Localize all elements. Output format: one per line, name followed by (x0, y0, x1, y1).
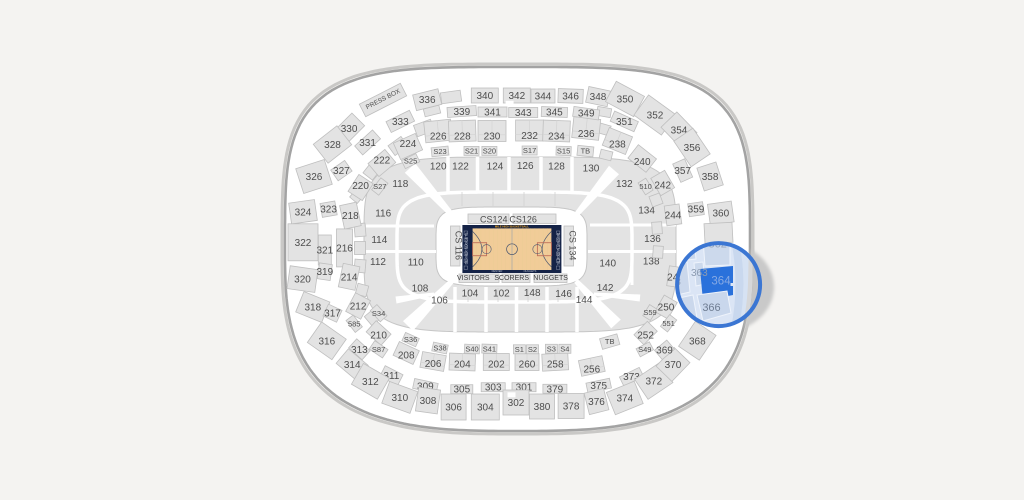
svg-text:S17: S17 (523, 146, 536, 155)
svg-text:130: 130 (583, 164, 600, 175)
svg-text:322: 322 (295, 238, 312, 249)
svg-text:345: 345 (546, 108, 563, 119)
svg-text:370: 370 (665, 360, 682, 371)
svg-text:CS126: CS126 (509, 214, 537, 224)
svg-text:339: 339 (453, 107, 470, 118)
svg-text:146: 146 (555, 289, 572, 300)
svg-text:204: 204 (454, 360, 471, 371)
svg-text:S40: S40 (465, 345, 478, 354)
svg-text:104: 104 (462, 288, 479, 299)
svg-text:341: 341 (484, 108, 501, 119)
svg-text:378: 378 (563, 402, 580, 413)
svg-text:CS 116: CS 116 (454, 231, 464, 260)
svg-text:328: 328 (324, 140, 341, 151)
svg-text:312: 312 (362, 377, 379, 388)
svg-text:306: 306 (445, 403, 462, 414)
svg-text:NUGGETS: NUGGETS (533, 275, 568, 282)
svg-text:S49: S49 (638, 345, 651, 354)
svg-text:142: 142 (597, 283, 614, 294)
svg-text:331: 331 (359, 138, 376, 149)
svg-text:S21: S21 (465, 147, 478, 156)
svg-text:350: 350 (617, 95, 634, 106)
svg-text:202: 202 (488, 360, 505, 371)
svg-text:216: 216 (336, 243, 353, 254)
svg-text:106: 106 (431, 295, 448, 306)
svg-text:144: 144 (576, 295, 593, 306)
svg-text:230: 230 (484, 132, 501, 143)
svg-text:242: 242 (654, 181, 671, 192)
svg-text:304: 304 (477, 403, 494, 414)
svg-text:108: 108 (412, 283, 429, 294)
svg-text:356: 356 (684, 143, 701, 154)
svg-text:357: 357 (674, 166, 691, 177)
svg-text:319: 319 (316, 267, 333, 278)
svg-text:349: 349 (578, 109, 595, 120)
svg-text:551: 551 (662, 319, 675, 328)
svg-text:214: 214 (341, 272, 358, 283)
svg-text:318: 318 (304, 303, 321, 314)
svg-text:327: 327 (333, 166, 350, 177)
svg-text:S41: S41 (483, 344, 496, 353)
svg-text:336: 336 (419, 95, 436, 106)
svg-text:340: 340 (476, 91, 493, 102)
svg-text:226: 226 (430, 132, 447, 143)
svg-text:S1: S1 (515, 345, 524, 354)
svg-text:210: 210 (370, 331, 387, 342)
svg-text:317: 317 (324, 309, 341, 320)
svg-text:358: 358 (702, 172, 719, 183)
svg-text:222: 222 (374, 156, 391, 167)
svg-text:368: 368 (689, 336, 706, 347)
svg-text:102: 102 (493, 288, 510, 299)
svg-text:240: 240 (634, 157, 651, 168)
svg-text:S2: S2 (528, 345, 537, 354)
svg-text:206: 206 (425, 359, 442, 370)
svg-text:SCORERS: SCORERS (494, 275, 529, 282)
svg-text:314: 314 (344, 360, 361, 371)
svg-text:S4: S4 (560, 344, 569, 353)
svg-text:TB: TB (605, 337, 615, 346)
svg-text:369: 369 (656, 345, 673, 356)
svg-text:126: 126 (517, 161, 534, 172)
svg-text:342: 342 (508, 91, 525, 102)
svg-text:DENVER: DENVER (492, 269, 503, 273)
svg-text:303: 303 (485, 383, 502, 394)
svg-text:118: 118 (392, 179, 408, 190)
svg-text:S20: S20 (483, 147, 496, 156)
svg-text:S25: S25 (404, 157, 417, 166)
svg-text:120: 120 (430, 162, 447, 173)
svg-text:136: 136 (644, 234, 661, 245)
svg-text:232: 232 (521, 131, 538, 142)
svg-text:244: 244 (665, 210, 682, 221)
svg-text:148: 148 (524, 288, 541, 299)
svg-text:510: 510 (639, 182, 652, 191)
svg-text:S87: S87 (372, 345, 385, 354)
svg-text:124: 124 (487, 162, 504, 173)
svg-text:360: 360 (712, 209, 729, 220)
svg-text:366: 366 (702, 302, 720, 314)
svg-text:DENVER NUGGETS: DENVER NUGGETS (465, 232, 469, 265)
svg-text:364: 364 (711, 276, 731, 288)
svg-text:220: 220 (352, 181, 369, 192)
svg-text:258: 258 (547, 360, 564, 371)
svg-text:S36: S36 (404, 335, 417, 344)
svg-text:NUGGETS: NUGGETS (524, 269, 537, 273)
svg-text:140: 140 (599, 258, 616, 269)
svg-text:S34: S34 (372, 309, 385, 318)
svg-text:372: 372 (645, 377, 662, 388)
svg-text:CS 134: CS 134 (567, 230, 577, 260)
svg-text:VISITORS: VISITORS (457, 275, 490, 282)
svg-text:114: 114 (371, 235, 387, 246)
svg-text:228: 228 (454, 132, 471, 143)
svg-text:S23: S23 (433, 147, 446, 156)
svg-text:344: 344 (535, 92, 552, 103)
svg-text:128: 128 (548, 162, 565, 173)
svg-text:S59: S59 (643, 308, 656, 317)
svg-text:324: 324 (295, 207, 312, 218)
svg-text:352: 352 (647, 111, 664, 122)
svg-text:212: 212 (350, 302, 367, 313)
svg-text:323: 323 (320, 205, 337, 216)
svg-text:348: 348 (590, 92, 607, 103)
svg-text:351: 351 (616, 117, 633, 128)
svg-text:218: 218 (342, 211, 359, 222)
svg-text:224: 224 (400, 139, 417, 150)
svg-text:234: 234 (548, 132, 565, 143)
svg-text:310: 310 (391, 393, 408, 404)
svg-text:359: 359 (688, 205, 705, 216)
svg-text:TB: TB (581, 147, 591, 156)
svg-text:238: 238 (609, 140, 626, 151)
svg-text:132: 132 (616, 179, 633, 190)
svg-text:333: 333 (392, 117, 409, 128)
svg-text:S38: S38 (433, 344, 446, 353)
svg-text:S27: S27 (373, 182, 386, 191)
svg-text:320: 320 (294, 275, 311, 286)
svg-text:CS124: CS124 (480, 214, 508, 224)
svg-text:308: 308 (420, 396, 437, 407)
svg-text:256: 256 (583, 365, 600, 376)
svg-text:380: 380 (534, 402, 551, 413)
svg-text:MILE HIGH BASKETBALL: MILE HIGH BASKETBALL (495, 225, 529, 229)
svg-text:110: 110 (408, 258, 424, 269)
svg-text:208: 208 (398, 351, 415, 362)
svg-text:326: 326 (306, 172, 323, 183)
svg-text:585: 585 (348, 319, 361, 328)
svg-text:321: 321 (316, 246, 333, 257)
svg-text:316: 316 (318, 336, 335, 347)
svg-text:S15: S15 (557, 147, 570, 156)
svg-text:302: 302 (508, 398, 525, 409)
svg-text:236: 236 (578, 129, 595, 140)
svg-text:346: 346 (562, 92, 579, 103)
svg-text:343: 343 (515, 108, 532, 119)
svg-text:374: 374 (616, 394, 633, 405)
svg-text:252: 252 (637, 331, 654, 342)
svg-text:260: 260 (519, 360, 536, 371)
svg-text:112: 112 (370, 257, 386, 268)
svg-text:122: 122 (452, 162, 469, 173)
svg-text:S3: S3 (547, 344, 556, 353)
svg-text:116: 116 (375, 209, 391, 220)
svg-text:376: 376 (588, 397, 605, 408)
svg-text:363: 363 (691, 268, 708, 279)
svg-text:250: 250 (658, 303, 675, 314)
